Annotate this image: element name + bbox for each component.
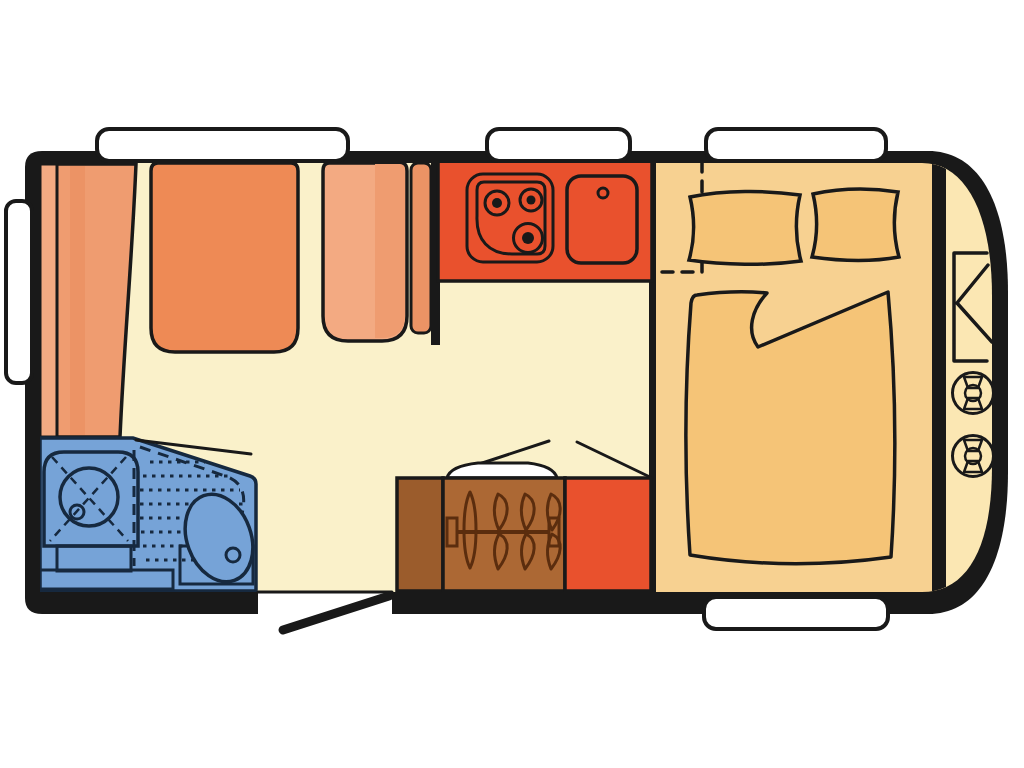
burner-dot — [522, 232, 534, 244]
pillow-left — [689, 191, 801, 264]
seat-cushion-small-shade — [375, 164, 405, 338]
gas-bottle-icon — [953, 373, 994, 414]
window-top-right — [706, 129, 886, 161]
wardrobe — [443, 478, 565, 591]
wardrobe-cabinet-dark — [397, 478, 443, 591]
burner-dot — [527, 196, 536, 205]
pillow-right — [812, 189, 899, 260]
window-side-left — [6, 201, 32, 383]
caravan-floor-plan — [0, 0, 1024, 768]
kitchen-block — [438, 161, 652, 281]
window-bottom-right — [704, 597, 888, 629]
burner-dot — [492, 198, 502, 208]
front-bulkhead-wall — [932, 161, 946, 594]
window-top-center — [487, 129, 630, 161]
seat-cushion-large — [151, 163, 298, 352]
window-top-left — [97, 129, 348, 161]
fridge — [565, 478, 651, 591]
side-bench-shade — [70, 166, 85, 435]
half-round-shelf — [447, 463, 557, 478]
seat-bolster — [411, 163, 431, 333]
rail-bracket — [447, 518, 457, 546]
caravan-floor-plan-page — [0, 0, 1024, 768]
double-bed-duvet — [686, 292, 895, 564]
sink-drain-dot — [598, 188, 608, 198]
side-bench-backrest — [40, 164, 57, 437]
gas-bottle-icon — [953, 436, 994, 477]
